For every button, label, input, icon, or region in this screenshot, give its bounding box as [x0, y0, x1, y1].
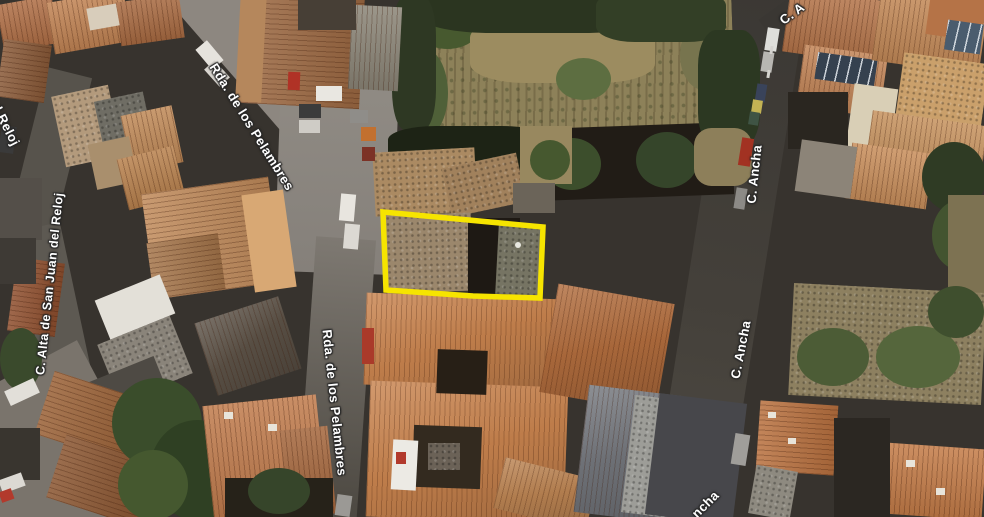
cargo-box — [396, 452, 406, 464]
chimney — [224, 412, 233, 419]
car — [361, 127, 376, 141]
roof-patch — [795, 139, 858, 198]
truck — [362, 328, 374, 364]
roof-patch — [428, 443, 460, 470]
roof-patch — [0, 238, 36, 284]
solar-panels — [944, 20, 984, 55]
roof-patch — [845, 143, 934, 210]
vegetation-patch — [556, 58, 611, 100]
car — [288, 72, 301, 90]
van — [316, 86, 342, 101]
vegetation-patch — [928, 286, 984, 338]
roof-patch — [194, 296, 301, 395]
car — [350, 110, 368, 123]
shadow-patch — [834, 418, 890, 517]
satellite-map[interactable]: del Reloj Rda. de los Pelambres Rda. de … — [0, 0, 984, 517]
rooftop-vent — [515, 242, 521, 248]
chimney — [268, 424, 277, 431]
tree-patch — [636, 132, 698, 188]
car — [335, 494, 353, 517]
roof-patch — [884, 443, 984, 517]
car — [339, 193, 356, 221]
tree-patch — [530, 140, 570, 180]
vegetation-patch — [797, 328, 869, 386]
roof-patch — [385, 213, 474, 294]
roof-patch — [0, 39, 52, 103]
chimney — [768, 412, 776, 418]
chimney — [936, 488, 945, 495]
car — [343, 223, 360, 249]
dirt-patch — [948, 195, 984, 295]
roof-patch — [495, 224, 545, 296]
roof-patch — [298, 0, 356, 30]
car — [362, 147, 375, 161]
roof-patch — [0, 178, 42, 240]
van — [391, 439, 419, 490]
tree-patch — [118, 450, 188, 517]
tree-patch — [248, 468, 310, 514]
chimney — [906, 460, 915, 467]
roof-patch — [513, 183, 555, 213]
car — [748, 111, 760, 125]
car — [731, 433, 751, 466]
car — [299, 104, 321, 118]
courtyard — [436, 349, 488, 395]
car — [299, 120, 320, 133]
courtyard — [788, 92, 848, 149]
roof-patch — [115, 0, 185, 46]
chimney — [788, 438, 796, 444]
roof-patch — [748, 465, 798, 517]
